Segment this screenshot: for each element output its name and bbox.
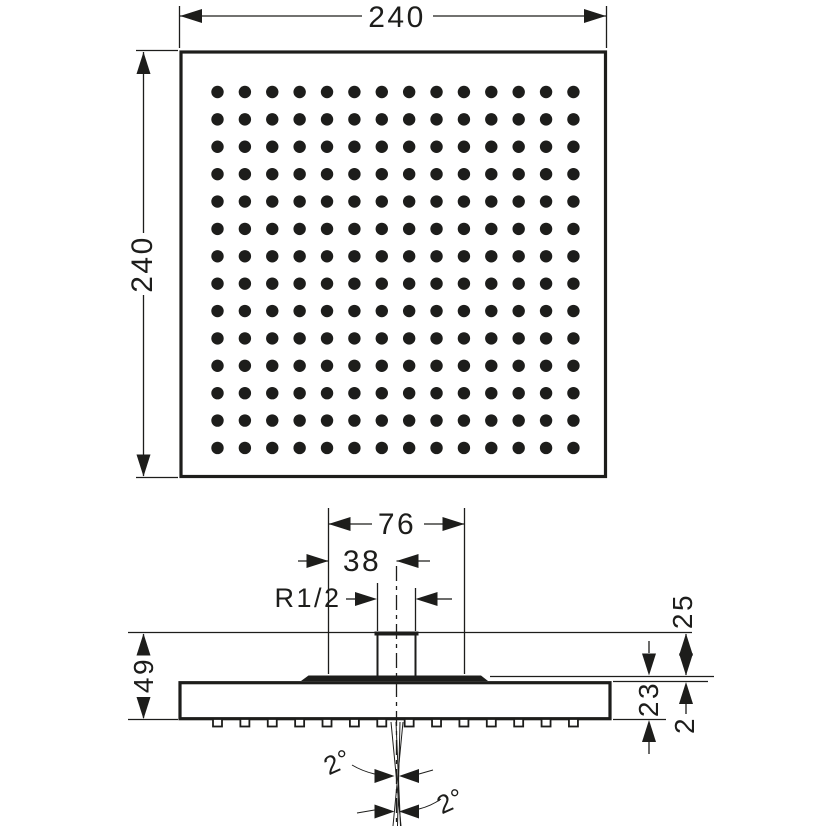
spray-hole-dot bbox=[321, 277, 333, 289]
spray-hole-dot bbox=[211, 305, 223, 317]
spray-hole-dot bbox=[211, 360, 223, 372]
spray-hole-dot bbox=[211, 414, 223, 426]
nozzle bbox=[377, 719, 386, 727]
spray-hole-dot bbox=[485, 305, 497, 317]
spray-hole-dot bbox=[403, 141, 415, 153]
spray-hole-dot bbox=[376, 250, 388, 262]
spray-hole-dot bbox=[430, 305, 442, 317]
spray-hole-dot bbox=[376, 168, 388, 180]
arrowhead-left bbox=[180, 9, 202, 23]
nozzle bbox=[542, 719, 551, 727]
spray-hole-dot bbox=[403, 223, 415, 235]
arrowhead-down bbox=[679, 654, 693, 676]
nozzle bbox=[295, 719, 304, 727]
spray-hole-dot bbox=[266, 277, 278, 289]
thread-label: R1/2 bbox=[274, 583, 341, 613]
spray-hole-dot bbox=[567, 305, 579, 317]
spray-hole-dot bbox=[266, 414, 278, 426]
arrowhead-left-pointing bbox=[397, 554, 419, 568]
spray-hole-dot bbox=[321, 414, 333, 426]
dim-49: 49 bbox=[128, 634, 178, 720]
leader-line bbox=[357, 810, 375, 813]
nozzle bbox=[350, 719, 359, 727]
spray-hole-dot bbox=[321, 195, 333, 207]
spray-hole-dot bbox=[458, 277, 470, 289]
spray-hole-dot bbox=[376, 113, 388, 125]
spray-hole-dot bbox=[293, 305, 305, 317]
spray-hole-dot bbox=[430, 168, 442, 180]
spray-hole-dot bbox=[485, 360, 497, 372]
spray-hole-dot bbox=[376, 442, 388, 454]
spray-hole-dot bbox=[567, 360, 579, 372]
spray-hole-dot bbox=[239, 360, 251, 372]
spray-hole-dot bbox=[485, 168, 497, 180]
spray-hole-dot bbox=[211, 387, 223, 399]
spray-hole-dot bbox=[512, 195, 524, 207]
spray-hole-dot bbox=[430, 387, 442, 399]
spray-hole-dot bbox=[403, 168, 415, 180]
spray-hole-dot bbox=[376, 414, 388, 426]
spray-hole-dot bbox=[540, 195, 552, 207]
spray-hole-dot bbox=[540, 305, 552, 317]
spray-hole-dot bbox=[485, 223, 497, 235]
spray-hole-dot bbox=[239, 442, 251, 454]
angle-label-upper: 2° bbox=[319, 743, 356, 781]
spray-hole-dot bbox=[348, 332, 360, 344]
spray-hole-dot bbox=[512, 305, 524, 317]
spray-hole-dot bbox=[403, 387, 415, 399]
spray-hole-dot bbox=[403, 305, 415, 317]
dim-25: 25 bbox=[667, 593, 698, 676]
dim-label-23: 23 bbox=[633, 681, 664, 717]
spray-hole-dot bbox=[512, 442, 524, 454]
spray-hole-dot bbox=[239, 86, 251, 98]
spray-hole-dot bbox=[239, 141, 251, 153]
top-view: 240 240 bbox=[126, 1, 607, 478]
spray-hole-dot bbox=[512, 332, 524, 344]
spray-hole-dot bbox=[321, 442, 333, 454]
spray-hole-dot bbox=[458, 332, 470, 344]
nozzle bbox=[569, 719, 578, 727]
dim-angle-upper: 2° bbox=[319, 743, 433, 783]
spray-hole-dot bbox=[266, 86, 278, 98]
dim-thread-r12: R1/2 bbox=[274, 583, 452, 613]
arrowhead-right-pointing bbox=[375, 805, 395, 819]
spray-hole-dot bbox=[266, 168, 278, 180]
spray-hole-dot bbox=[485, 277, 497, 289]
spray-hole-dot bbox=[321, 305, 333, 317]
arrowhead-right-pointing bbox=[375, 769, 395, 783]
spray-hole-dot bbox=[512, 168, 524, 180]
spray-hole-dot bbox=[430, 195, 442, 207]
dim-angle-lower: 2° bbox=[357, 782, 469, 820]
spray-hole-dot bbox=[211, 86, 223, 98]
spray-hole-dot bbox=[567, 250, 579, 262]
spray-hole-dot bbox=[567, 414, 579, 426]
nozzle bbox=[268, 719, 277, 727]
spray-hole-dot bbox=[485, 387, 497, 399]
spray-hole-dot bbox=[293, 332, 305, 344]
spray-hole-dot bbox=[293, 414, 305, 426]
spray-hole-dot bbox=[458, 141, 470, 153]
arrowhead-down bbox=[642, 654, 656, 676]
arrowhead-left bbox=[329, 517, 351, 531]
spray-hole-dot bbox=[266, 141, 278, 153]
nozzle bbox=[405, 719, 414, 727]
spray-hole-dot bbox=[567, 86, 579, 98]
spray-hole-dot bbox=[321, 223, 333, 235]
spray-hole-dot bbox=[348, 442, 360, 454]
spray-hole-dot bbox=[266, 250, 278, 262]
spray-hole-dot bbox=[403, 414, 415, 426]
dim-23: 23 bbox=[633, 641, 664, 754]
spray-hole-dot bbox=[540, 387, 552, 399]
dim-label-38: 38 bbox=[343, 545, 381, 578]
arrowhead-up bbox=[679, 682, 693, 704]
spray-hole-dot bbox=[239, 223, 251, 235]
dim-width-240: 240 bbox=[180, 1, 607, 48]
nozzle bbox=[213, 719, 222, 727]
spray-hole-dot bbox=[293, 168, 305, 180]
spray-hole-dot bbox=[211, 250, 223, 262]
arrowhead-left-pointing bbox=[399, 769, 419, 783]
arrowhead-right bbox=[443, 517, 465, 531]
spray-hole-dot bbox=[266, 387, 278, 399]
spray-hole-dot bbox=[485, 113, 497, 125]
spray-hole-dot bbox=[430, 442, 442, 454]
spray-hole-dot bbox=[403, 86, 415, 98]
nozzle bbox=[487, 719, 496, 727]
spray-hole-dot bbox=[239, 250, 251, 262]
spray-hole-dot bbox=[430, 250, 442, 262]
mounting-plate bbox=[301, 676, 488, 682]
spray-hole-dot bbox=[430, 141, 442, 153]
spray-hole-dot bbox=[348, 277, 360, 289]
spray-hole-dot bbox=[485, 141, 497, 153]
spray-hole-dot bbox=[293, 387, 305, 399]
spray-hole-dot bbox=[348, 141, 360, 153]
spray-hole-dot bbox=[458, 250, 470, 262]
spray-hole-dot bbox=[348, 387, 360, 399]
spray-hole-dot bbox=[321, 86, 333, 98]
spray-hole-dot bbox=[567, 141, 579, 153]
spray-hole-dot bbox=[512, 360, 524, 372]
spray-hole-dot bbox=[348, 86, 360, 98]
spray-hole-dot bbox=[540, 250, 552, 262]
angle-label-lower: 2° bbox=[432, 782, 469, 820]
spray-hole-dot bbox=[239, 305, 251, 317]
dim-label-height: 240 bbox=[126, 235, 159, 293]
spray-hole-dot bbox=[430, 332, 442, 344]
spray-hole-dot bbox=[376, 387, 388, 399]
spray-hole-dot bbox=[430, 277, 442, 289]
spray-hole-dot bbox=[266, 305, 278, 317]
technical-drawing-canvas: 240 240 76 bbox=[0, 0, 828, 828]
spray-hole-dot bbox=[266, 332, 278, 344]
spray-hole-dot bbox=[540, 414, 552, 426]
spray-hole-dot bbox=[512, 414, 524, 426]
spray-hole-dot bbox=[376, 195, 388, 207]
spray-hole-dot bbox=[512, 277, 524, 289]
spray-hole-dot bbox=[266, 442, 278, 454]
spray-hole-dot bbox=[567, 168, 579, 180]
spray-hole-dot bbox=[458, 414, 470, 426]
spray-hole-dot bbox=[403, 277, 415, 289]
spray-hole-dot bbox=[485, 195, 497, 207]
spray-hole-dot bbox=[293, 277, 305, 289]
spray-hole-dot bbox=[293, 195, 305, 207]
arrowhead-up bbox=[679, 634, 693, 656]
spray-hole-dot bbox=[211, 113, 223, 125]
spray-hole-dot bbox=[403, 360, 415, 372]
dim-label-width: 240 bbox=[368, 1, 426, 34]
spray-hole-dot bbox=[321, 332, 333, 344]
spray-hole-dot bbox=[485, 332, 497, 344]
spray-hole-dot bbox=[211, 332, 223, 344]
spray-hole-dot bbox=[293, 442, 305, 454]
spray-hole-dot bbox=[540, 113, 552, 125]
spray-hole-dot bbox=[376, 305, 388, 317]
arrowhead-up bbox=[642, 720, 656, 742]
spray-hole-dot bbox=[403, 113, 415, 125]
spray-hole-dot bbox=[430, 86, 442, 98]
spray-hole-dot bbox=[540, 332, 552, 344]
spray-hole-dot bbox=[430, 223, 442, 235]
side-view: 76 38 R1/2 bbox=[128, 508, 714, 827]
spray-hole-dot bbox=[403, 332, 415, 344]
spray-hole-dot bbox=[211, 277, 223, 289]
spray-hole-dot bbox=[321, 250, 333, 262]
spray-hole-dot bbox=[348, 168, 360, 180]
spray-hole-dot bbox=[430, 113, 442, 125]
arrowhead-down bbox=[137, 455, 151, 477]
spray-hole-dot bbox=[458, 86, 470, 98]
spray-hole-dot bbox=[293, 141, 305, 153]
spray-hole-dot bbox=[239, 387, 251, 399]
spray-hole-dot bbox=[376, 360, 388, 372]
arrowhead-right-pointing bbox=[307, 554, 329, 568]
spray-hole-dot bbox=[540, 223, 552, 235]
spray-hole-dot bbox=[211, 223, 223, 235]
spray-hole-dot bbox=[458, 305, 470, 317]
spray-hole-dot bbox=[567, 195, 579, 207]
spray-hole-dot bbox=[211, 195, 223, 207]
spray-hole-dot bbox=[485, 86, 497, 98]
spray-hole-dot bbox=[403, 442, 415, 454]
spray-hole-dot bbox=[512, 113, 524, 125]
spray-hole-dot bbox=[458, 360, 470, 372]
shower-head-dimension-drawing: 240 240 76 bbox=[0, 0, 828, 828]
spray-hole-dot bbox=[430, 414, 442, 426]
arrowhead-right bbox=[584, 9, 606, 23]
spray-hole-dot bbox=[376, 332, 388, 344]
dim-label-2: 2 bbox=[669, 716, 700, 734]
spray-hole-dot bbox=[430, 360, 442, 372]
nozzle bbox=[514, 719, 523, 727]
shower-body bbox=[180, 683, 610, 719]
spray-hole-dot bbox=[293, 113, 305, 125]
spray-hole-dot bbox=[512, 223, 524, 235]
spray-hole-dot bbox=[458, 168, 470, 180]
spray-hole-dot bbox=[458, 387, 470, 399]
spray-hole-dot bbox=[485, 250, 497, 262]
spray-hole-dot bbox=[321, 141, 333, 153]
leader-line bbox=[419, 770, 433, 774]
spray-hole-dot bbox=[512, 387, 524, 399]
spray-hole-dot bbox=[540, 360, 552, 372]
spray-hole-dot bbox=[376, 277, 388, 289]
arrowhead-up bbox=[137, 52, 151, 74]
spray-hole-dot bbox=[567, 113, 579, 125]
spray-hole-dot bbox=[293, 360, 305, 372]
spray-hole-dot bbox=[211, 168, 223, 180]
spray-hole-dot bbox=[458, 195, 470, 207]
spray-hole-dot bbox=[540, 442, 552, 454]
spray-hole-dot bbox=[540, 277, 552, 289]
spray-hole-dot bbox=[485, 414, 497, 426]
spray-hole-dot bbox=[403, 250, 415, 262]
arrowhead-left-pointing bbox=[416, 592, 438, 606]
nozzle bbox=[432, 719, 441, 727]
nozzle bbox=[240, 719, 249, 727]
spray-hole-dot bbox=[348, 250, 360, 262]
dim-38: 38 bbox=[298, 545, 430, 578]
arrowhead-right-pointing bbox=[355, 592, 377, 606]
spray-hole-dot bbox=[458, 442, 470, 454]
spray-hole-dot bbox=[540, 141, 552, 153]
spray-hole-dot bbox=[376, 223, 388, 235]
spray-hole-dot bbox=[239, 195, 251, 207]
dim-label-25: 25 bbox=[667, 593, 698, 629]
spray-hole-dot bbox=[348, 305, 360, 317]
spray-hole-dot bbox=[239, 168, 251, 180]
spray-hole-dot bbox=[512, 141, 524, 153]
dim-2: 2 bbox=[669, 682, 700, 734]
spray-hole-dot bbox=[376, 141, 388, 153]
spray-hole-dot bbox=[376, 86, 388, 98]
spray-hole-dot bbox=[512, 86, 524, 98]
spray-hole-dot bbox=[321, 168, 333, 180]
dim-height-240: 240 bbox=[126, 51, 178, 478]
spray-hole-dot bbox=[266, 113, 278, 125]
spray-hole-dot bbox=[485, 442, 497, 454]
dim-label-49: 49 bbox=[128, 657, 159, 693]
nozzle bbox=[459, 719, 468, 727]
nozzle bbox=[323, 719, 332, 727]
spray-hole-dot bbox=[567, 442, 579, 454]
spray-hole-dot bbox=[540, 168, 552, 180]
spray-hole-dot bbox=[293, 223, 305, 235]
spray-hole-dot bbox=[266, 223, 278, 235]
spray-hole-dot bbox=[403, 195, 415, 207]
spray-hole-dot bbox=[567, 277, 579, 289]
spray-hole-dot bbox=[239, 277, 251, 289]
spray-hole-dot bbox=[239, 332, 251, 344]
arrowhead-left-pointing bbox=[399, 805, 419, 819]
spray-hole-dot bbox=[567, 332, 579, 344]
spray-hole-dot bbox=[293, 86, 305, 98]
spray-hole-dot bbox=[211, 141, 223, 153]
spray-hole-dot bbox=[321, 360, 333, 372]
spray-hole-dot bbox=[211, 442, 223, 454]
spray-hole-dot bbox=[266, 195, 278, 207]
spray-hole-dot bbox=[321, 113, 333, 125]
arrowhead-up bbox=[137, 634, 151, 656]
spray-hole-dot bbox=[239, 113, 251, 125]
spray-hole-dot bbox=[567, 387, 579, 399]
spray-hole-dot bbox=[266, 360, 278, 372]
spray-hole-dot bbox=[321, 387, 333, 399]
arrowhead-down bbox=[137, 697, 151, 719]
spray-hole-dot bbox=[567, 223, 579, 235]
spray-hole-dot bbox=[348, 195, 360, 207]
spray-hole-dot bbox=[540, 86, 552, 98]
spray-hole-dot bbox=[348, 360, 360, 372]
spray-hole-dot bbox=[458, 223, 470, 235]
spray-hole-dot bbox=[348, 113, 360, 125]
spray-hole-dot bbox=[512, 250, 524, 262]
spray-hole-dot bbox=[458, 113, 470, 125]
spray-hole-dot bbox=[348, 223, 360, 235]
dim-label-76: 76 bbox=[378, 508, 416, 541]
spray-hole-dot bbox=[239, 414, 251, 426]
spray-hole-dot bbox=[348, 414, 360, 426]
spray-hole-dot bbox=[293, 250, 305, 262]
